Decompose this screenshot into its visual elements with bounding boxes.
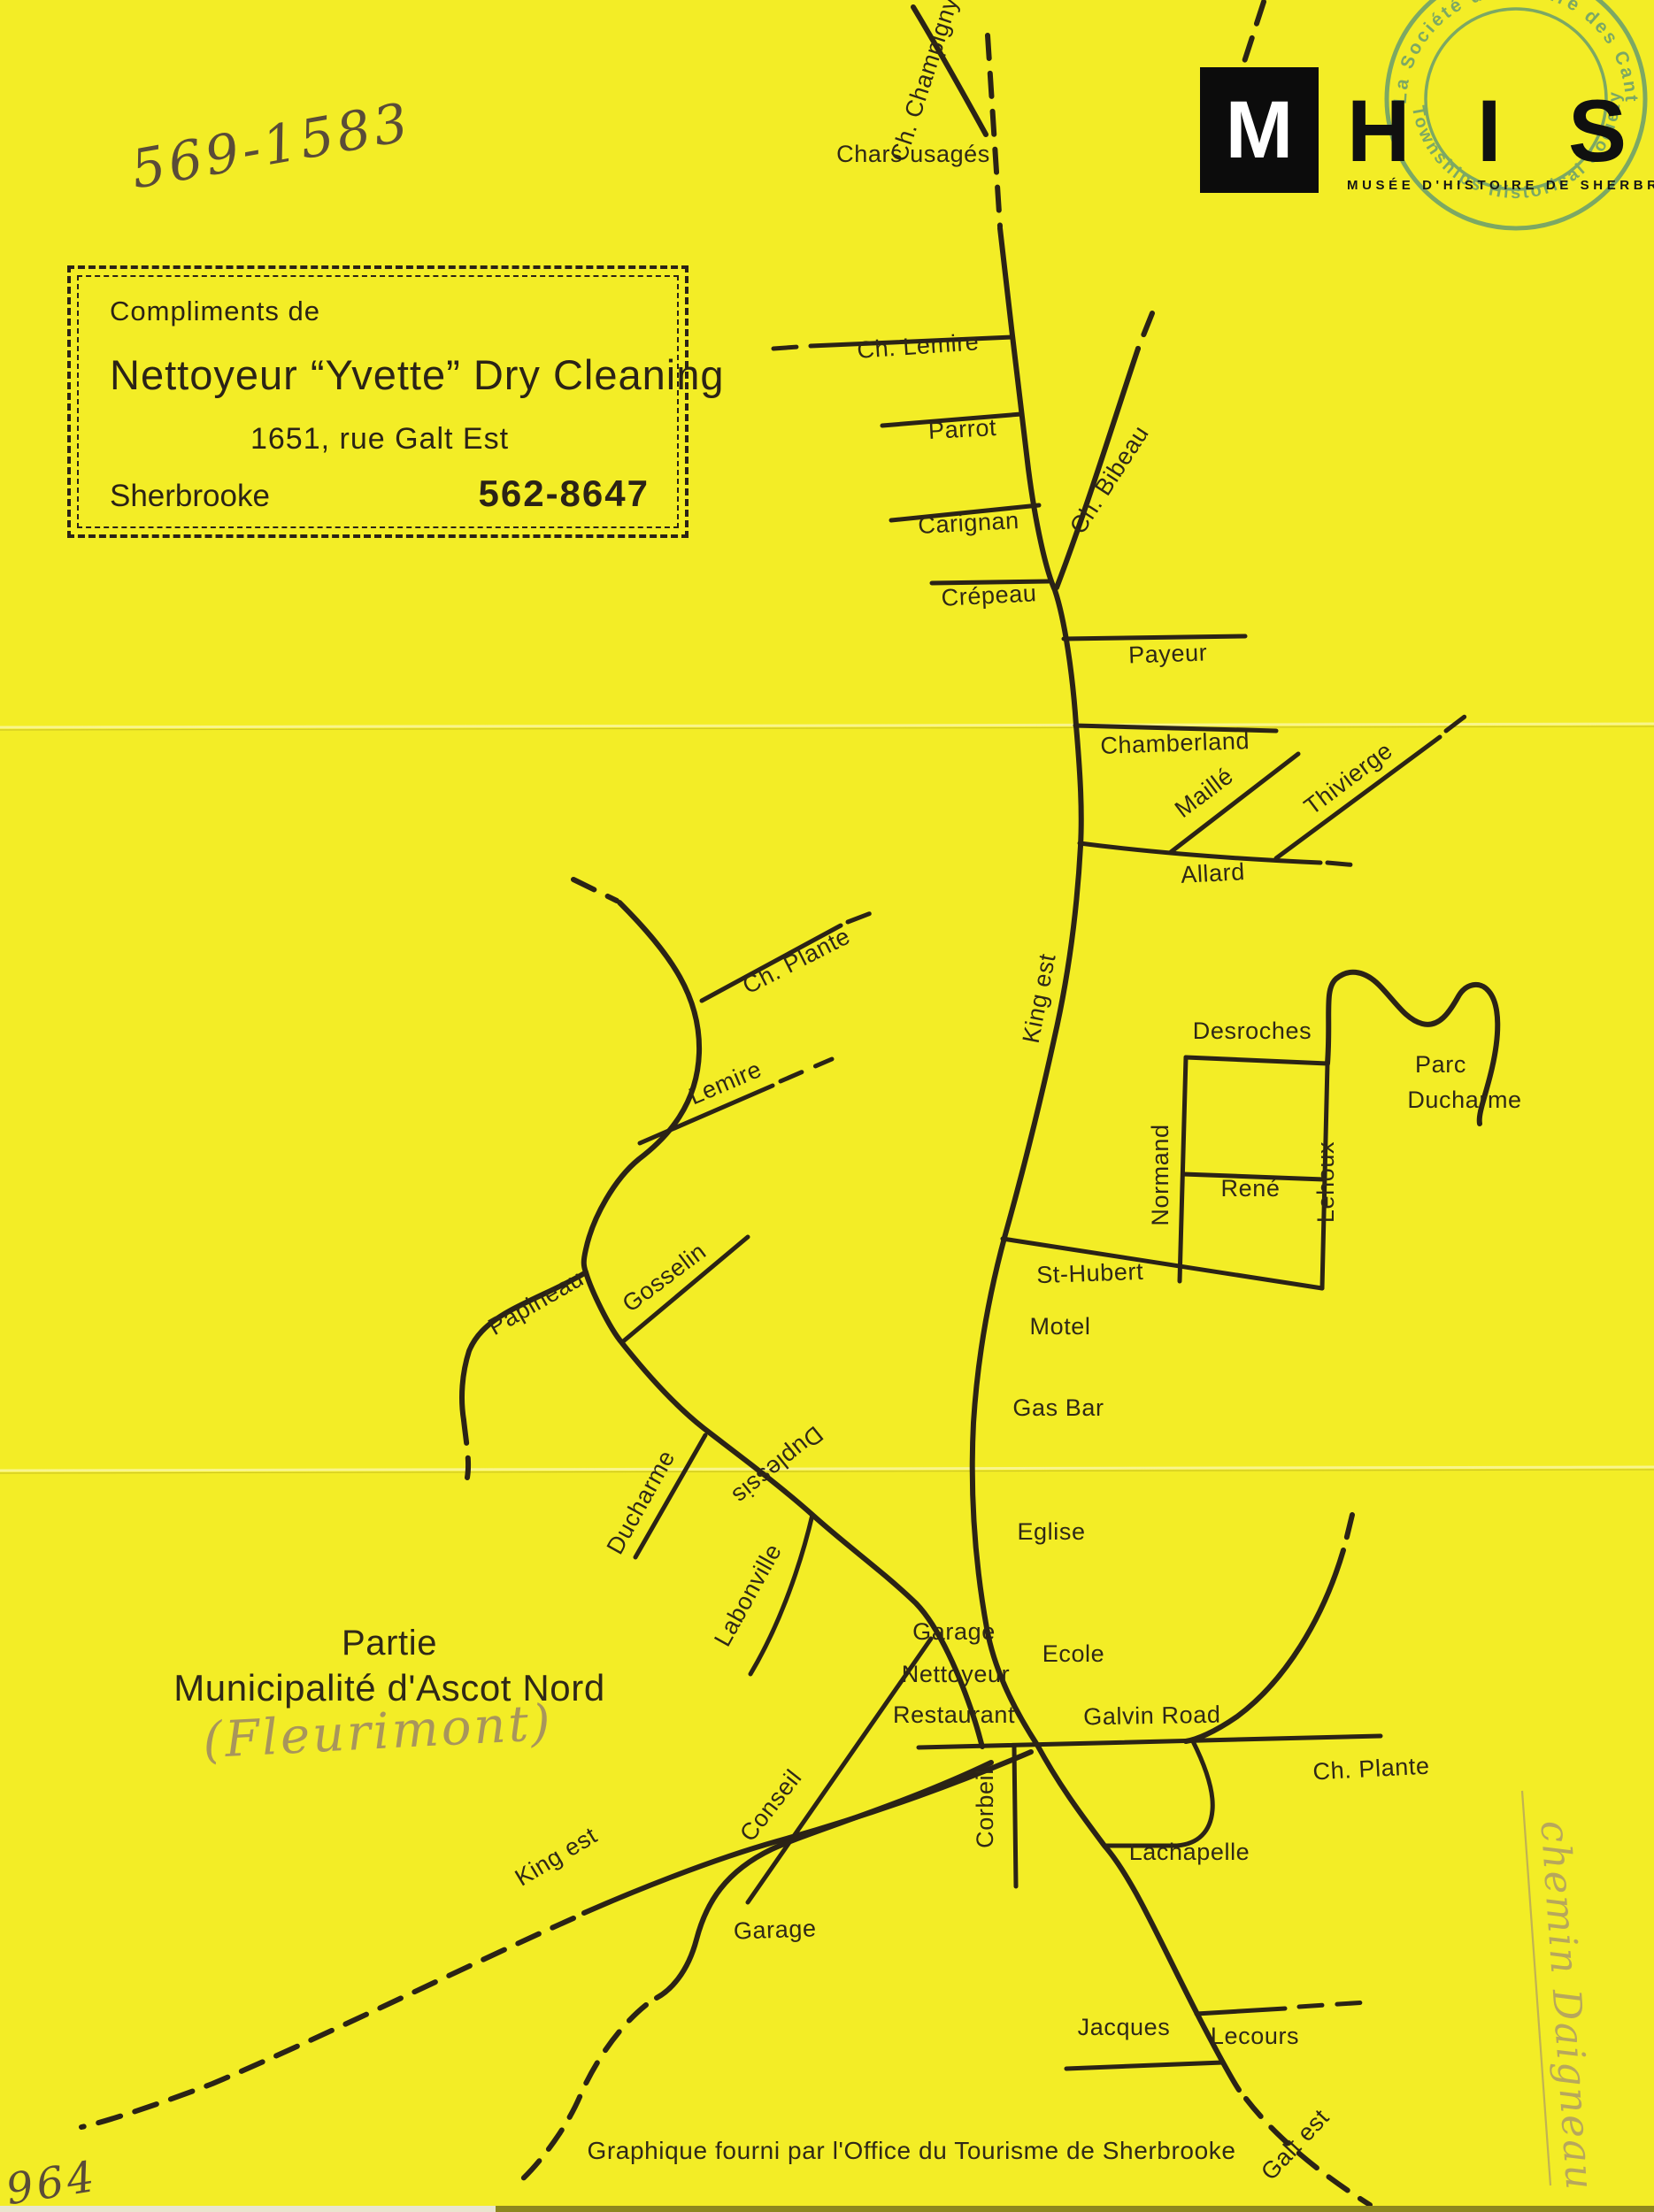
road-king-est-north-dash xyxy=(988,35,1000,227)
road-thivierge-dash xyxy=(1446,708,1476,731)
ad-business-name: Nettoyeur “Yvette” Dry Cleaning xyxy=(110,350,650,399)
map-label-ecole: Ecole xyxy=(1042,1640,1105,1667)
ad-box: Compliments de Nettoyeur “Yvette” Dry Cl… xyxy=(67,265,689,538)
map-label-lehoux: Lehoux xyxy=(1312,1141,1339,1223)
map-label-jacques: Jacques xyxy=(1078,2014,1171,2040)
map-label-normand: Normand xyxy=(1147,1124,1173,1225)
map-label-garage-centre: Garage xyxy=(912,1618,996,1645)
map-label-carignan: Carignan xyxy=(918,507,1020,539)
ad-compliments: Compliments de xyxy=(110,296,650,327)
road-corbeil xyxy=(1014,1747,1016,1886)
map-label-rene: René xyxy=(1221,1175,1281,1202)
map-label-desroches: Desroches xyxy=(1193,1018,1312,1044)
map-label-galvin-road: Galvin Road xyxy=(1083,1701,1221,1731)
map-label-region-line1: Partie xyxy=(342,1624,437,1663)
map-label-nettoyeur: Nettoyeur xyxy=(902,1661,1010,1687)
road-jacques xyxy=(1066,2062,1223,2069)
map-label-chemin-daigneau: chemin Daigneau xyxy=(1531,1819,1602,2193)
map-label-garage-south: Garage xyxy=(733,1915,817,1944)
mhist-logo-subtitle: MUSÉE D'HISTOIRE DE SHERBROOKE xyxy=(1347,178,1654,193)
map-label-lachapelle: Lachapelle xyxy=(1129,1839,1250,1865)
scanned-map-page: La Société d'histoire des Cantons de l'E… xyxy=(0,0,1654,2212)
map-label-parc-ducharme: Ducharme xyxy=(1407,1087,1521,1113)
map-label-year-1964: 1964 xyxy=(0,2152,101,2212)
map-label-ch-plante-lower: Ch. Plante xyxy=(1312,1753,1430,1786)
map-label-allard: Allard xyxy=(1180,858,1245,888)
map-label-ch-plante-upper: Ch. Plante xyxy=(738,923,854,1000)
map-label-ch-lemire: Ch. Lemire xyxy=(856,328,980,364)
map-label-duplessis: Duplessis xyxy=(727,1421,828,1509)
map-label-chamberland: Chamberland xyxy=(1100,727,1250,759)
scan-edge-bottom-left xyxy=(0,2206,496,2212)
map-label-parrot: Parrot xyxy=(927,414,997,444)
ad-city: Sherbrooke xyxy=(110,479,270,514)
mhist-logo-m-icon: M xyxy=(1200,67,1319,193)
road-galvin xyxy=(919,1736,1381,1747)
map-label-payeur: Payeur xyxy=(1128,639,1208,668)
map-label-lecours: Lecours xyxy=(1211,2023,1299,2049)
map-label-labonville: Labonville xyxy=(709,1540,787,1651)
road-lecours-dash xyxy=(1299,2002,1366,2007)
road-ch-plante-upper-dash xyxy=(848,910,878,922)
map-label-catalog-number: 569-1583 xyxy=(127,91,416,201)
ad-address: 1651, rue Galt Est xyxy=(110,422,650,457)
map-label-credit-caption: Graphique fourni par l'Office du Tourism… xyxy=(587,2137,1235,2164)
map-label-st-hubert: St-Hubert xyxy=(1036,1258,1144,1288)
map-label-king-est-west: King est xyxy=(511,1822,602,1891)
road-allard-dash xyxy=(1327,863,1358,865)
map-label-parc: Parc xyxy=(1415,1051,1466,1078)
map-label-eglise: Eglise xyxy=(1017,1518,1085,1545)
road-ch-bibeau-dash xyxy=(1138,313,1152,349)
map-label-papineau: Papineau xyxy=(484,1264,589,1340)
map-label-galt-est: Galt est xyxy=(1256,2104,1335,2185)
road-west-curve-dash xyxy=(573,879,617,901)
road-normand xyxy=(1180,1057,1186,1281)
map-label-corbeil: Corbeil xyxy=(972,1769,998,1848)
map-label-gas-bar: Gas Bar xyxy=(1012,1394,1104,1421)
map-label-crepeau: Crépeau xyxy=(941,580,1037,611)
road-desroches xyxy=(1186,1057,1327,1064)
mhist-logo: M H I S T MUSÉE D'HISTOIRE DE SHERBROOKE xyxy=(1200,67,1654,193)
map-label-motel: Motel xyxy=(1029,1313,1090,1340)
map-label-chars-usages: Chars usagés xyxy=(836,141,990,167)
road-lachapelle-loop xyxy=(1104,1741,1212,1846)
ad-phone: 562-8647 xyxy=(479,472,650,515)
road-king-est-west-dash xyxy=(81,1918,573,2127)
road-lecours xyxy=(1196,2008,1285,2014)
road-ch-lemire-dash xyxy=(773,346,811,349)
road-offmap-dash-topright xyxy=(1241,2,1264,73)
map-label-maille: Maillé xyxy=(1170,763,1238,824)
mhist-logo-hist: H I S T xyxy=(1347,87,1654,174)
road-ch-plante-lower-dash xyxy=(1345,1515,1352,1544)
road-payeur xyxy=(1064,636,1245,639)
road-lemire-south-dash xyxy=(781,1059,832,1081)
road-garage-curve xyxy=(657,1763,991,1998)
map-label-restaurant: Restaurant xyxy=(893,1701,1015,1728)
